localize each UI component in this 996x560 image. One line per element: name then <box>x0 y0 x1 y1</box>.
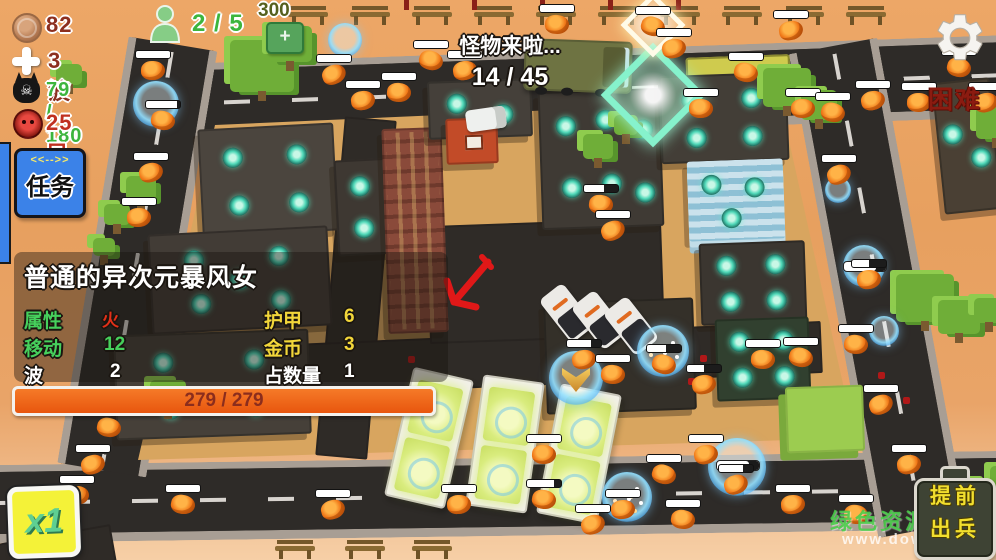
turret <box>716 256 737 277</box>
damage-dot <box>700 355 707 362</box>
enemy <box>165 484 201 514</box>
enemy-hp-bar <box>855 80 891 89</box>
enemy-hp-bar <box>728 52 764 61</box>
enemy-hp-fill <box>647 455 681 462</box>
turret <box>742 126 763 147</box>
task-button[interactable]: <<-->> 任务 <box>14 148 86 218</box>
enemy <box>646 344 682 374</box>
enemy-hp-bar <box>316 54 352 63</box>
settings-button[interactable] <box>932 10 988 66</box>
stat-move-label: 移动 <box>24 334 62 361</box>
enemy <box>783 337 819 367</box>
turret <box>555 115 576 136</box>
enemy-hp-bar <box>121 197 157 206</box>
enemy <box>815 92 851 122</box>
enemy-hp-fill <box>684 89 718 96</box>
plus-icon <box>12 47 40 75</box>
enemy <box>686 364 722 394</box>
enemy-hp-fill <box>689 435 723 442</box>
enemy-blob <box>867 392 896 418</box>
side-panel-edge <box>0 142 11 264</box>
enemy-hp-fill <box>567 340 591 347</box>
enemy-hp-fill <box>657 29 691 36</box>
enemy-hp-bar <box>526 479 562 488</box>
enemy-hp-fill <box>856 81 890 88</box>
turret <box>686 128 707 149</box>
enemy <box>745 339 781 369</box>
enemy-hp-bar <box>145 100 181 109</box>
bench <box>474 12 514 17</box>
enemy-hp-bar <box>718 464 754 473</box>
enemy-hp-bar <box>165 484 201 493</box>
enemy-hp-bar <box>345 80 381 89</box>
difficulty-badge: 困难 <box>928 80 982 116</box>
energy-add-button[interactable]: + <box>266 22 304 54</box>
enemy-hp-fill <box>596 355 630 362</box>
shield-bubble <box>328 23 362 57</box>
bench <box>288 12 328 17</box>
enemy-hp-bar <box>773 10 809 19</box>
enemy-hp-bar <box>686 364 722 373</box>
enemy-hp-bar <box>133 152 169 161</box>
enemy-blob <box>650 462 679 487</box>
enemy-hp-bar <box>566 339 602 348</box>
enemy-hp-bar <box>838 324 874 333</box>
coin-icon <box>12 13 42 43</box>
task-button-hint: <<-->> <box>17 154 83 166</box>
enemy-blob <box>693 443 720 466</box>
enemy-blob <box>141 61 165 80</box>
lamp-post <box>404 0 409 10</box>
person-icon <box>148 5 182 43</box>
tower-panel <box>474 445 527 505</box>
enemy-blob <box>319 497 347 522</box>
enemy-hp-bar <box>526 434 562 443</box>
turret <box>447 94 468 115</box>
enemy-hp-bar <box>656 28 692 37</box>
enemy-hp-fill <box>746 340 780 347</box>
enemy-hp-fill <box>729 53 763 60</box>
building <box>785 385 865 454</box>
enemy <box>526 479 562 509</box>
enemy-hp-bar <box>635 6 671 15</box>
enemy-blob <box>169 493 196 517</box>
turret <box>635 182 656 203</box>
population-indicator <box>148 5 182 48</box>
enemy-hp-fill <box>647 345 666 352</box>
task-button-label: 任务 <box>17 167 83 202</box>
stat-slot-label: 占数量 <box>264 361 321 388</box>
enemy-hp-fill <box>596 211 630 218</box>
enemy-hp-fill <box>122 198 156 205</box>
bubble-arrow <box>562 368 590 392</box>
stat-gold-value: 3 <box>344 334 355 356</box>
turret <box>942 123 964 145</box>
enemy-blob <box>95 416 123 440</box>
bench <box>846 12 886 17</box>
enemy-hp-fill <box>76 445 110 452</box>
tree <box>583 134 613 159</box>
enemy-blob <box>856 269 882 290</box>
turret <box>744 177 765 198</box>
enemy <box>605 489 641 519</box>
enemy-hp-bar: 279 / 279 <box>12 386 436 416</box>
enemy <box>775 484 811 514</box>
coin-count: 82 <box>46 12 72 38</box>
enemy-blob <box>600 364 626 385</box>
enemy <box>851 259 887 289</box>
enemy-blob <box>661 37 688 60</box>
enemy <box>728 52 764 82</box>
stat-attribute-value: 火 <box>102 306 119 331</box>
enemy-hp-bar <box>135 50 171 59</box>
enemy-blob <box>149 108 177 132</box>
enemy-hp-fill <box>60 476 94 483</box>
enemy-hp-fill <box>317 55 351 62</box>
speed-toggle-button[interactable]: x1 <box>7 485 81 559</box>
enemy-blob <box>778 19 805 42</box>
enemy <box>718 464 754 494</box>
bench <box>412 12 452 17</box>
enemy <box>315 489 351 519</box>
enemy-hp-fill <box>784 338 818 345</box>
lamp-post <box>472 0 477 10</box>
damage-dot <box>903 397 910 404</box>
bench <box>350 12 390 17</box>
enemy <box>121 197 157 227</box>
enemy-hp-fill <box>442 485 476 492</box>
enemy-blob <box>780 494 805 515</box>
enemy-name: 普通的异次元暴风女 <box>24 258 258 294</box>
enemy <box>595 354 631 384</box>
stat-armor-value: 6 <box>344 306 355 328</box>
energy-count: 300 <box>258 0 290 22</box>
enemy-hp-bar <box>775 484 811 493</box>
enemy-blob <box>819 100 847 125</box>
enemy-hp-fill <box>839 495 873 502</box>
building <box>197 123 338 238</box>
stat-wave-value: 2 <box>110 361 121 383</box>
enemy-hp-bar <box>539 4 575 13</box>
gear-icon <box>932 10 988 66</box>
turret <box>229 195 250 216</box>
enemy <box>891 444 927 474</box>
enemy <box>855 80 891 110</box>
enemy-hp-fill <box>527 435 561 442</box>
turret <box>222 148 243 169</box>
enemy-hp-bar <box>821 154 857 163</box>
damage-dot <box>878 372 885 379</box>
enemy <box>656 28 692 58</box>
enemy-hp-fill <box>606 490 640 497</box>
enemy-blob <box>791 98 816 118</box>
enemy-hp-fill <box>584 185 604 192</box>
enemy <box>665 499 701 529</box>
enemy-hp-bar <box>75 444 111 453</box>
enemy-hp-fill <box>852 260 869 267</box>
enemy-hp-fill <box>892 445 926 452</box>
enemy-blob <box>571 349 597 371</box>
enemy-hp-bar <box>583 184 619 193</box>
deploy-label-line2: 出兵 <box>917 514 993 547</box>
enemy-hp-fill <box>822 155 856 162</box>
enemy-hp-fill <box>346 81 380 88</box>
building <box>699 240 808 326</box>
enemy <box>646 454 682 484</box>
building <box>687 158 786 241</box>
enemy-blob <box>688 98 713 119</box>
watermark-url: www.dow <box>842 531 925 548</box>
lamp-post <box>676 0 681 10</box>
enemy-hp-text: 279 / 279 <box>184 390 263 411</box>
enemy-hp-fill <box>687 365 704 372</box>
enemy-blob <box>825 162 854 187</box>
enemy-hp-bar <box>315 489 351 498</box>
stat-gold-label: 金币 <box>264 334 302 361</box>
enemy-hp-fill <box>316 490 350 497</box>
enemy-hp-bar <box>783 337 819 346</box>
enemy-hp-bar <box>441 484 477 493</box>
turret <box>286 144 307 165</box>
enemy-hp-fill <box>719 465 743 472</box>
enemy-blob <box>531 444 556 465</box>
enemy-hp-bar <box>595 354 631 363</box>
turret <box>354 218 375 239</box>
enemy <box>345 80 381 110</box>
turret <box>721 207 742 228</box>
enemy <box>595 210 631 240</box>
enemy-hp-bar <box>59 475 95 484</box>
enemy-blob <box>579 512 607 537</box>
enemy-blob <box>127 208 151 227</box>
enemy-blob <box>650 352 679 378</box>
enemy-blob <box>611 499 636 519</box>
stat-move-value: 12 <box>104 334 125 356</box>
enemy-hp-fill <box>864 385 898 392</box>
wave-announcement: 怪物来啦... 14 / 45 <box>395 30 625 92</box>
enemy <box>773 10 809 40</box>
enemy-blob <box>137 161 165 185</box>
enemy <box>688 434 724 464</box>
enemy-hp-fill <box>166 485 200 492</box>
enemy-hp-fill <box>146 101 177 108</box>
tower-panel <box>557 396 612 458</box>
enemy <box>135 50 171 80</box>
monster-icon <box>13 109 43 139</box>
enemy <box>863 384 899 414</box>
enemy-hp-fill <box>134 153 168 160</box>
stat-armor-label: 护甲 <box>264 306 302 333</box>
turret <box>733 367 754 388</box>
stat-attribute-label: 属性 <box>24 306 62 333</box>
enemy-blob <box>670 508 697 531</box>
speed-toggle-label: x1 <box>24 501 63 540</box>
announcement-progress: 14 / 45 <box>395 63 625 92</box>
skull-cat-icon: ☠ <box>13 78 40 103</box>
enemy-blob <box>530 488 557 511</box>
announcement-text: 怪物来啦... <box>395 30 625 60</box>
enemy-hp-fill <box>666 500 700 507</box>
enemy <box>133 152 169 182</box>
enemy <box>441 484 477 514</box>
enemy-hp-bar <box>665 499 701 508</box>
stat-wave-label: 波 <box>24 361 43 388</box>
enemy-hp-fill <box>636 7 670 14</box>
enemy-hp-bar <box>891 444 927 453</box>
enemy-blob <box>598 217 627 243</box>
enemy-hp-bar <box>605 489 641 498</box>
turret <box>741 87 762 108</box>
turret <box>765 254 786 275</box>
turret <box>561 177 582 198</box>
enemy <box>526 434 562 464</box>
population-count: 2 / 5 <box>192 10 244 38</box>
enemy <box>75 444 111 474</box>
turret <box>701 175 722 196</box>
stat-slot-value: 1 <box>344 361 355 383</box>
bench <box>345 546 385 551</box>
enemy-hp-fill <box>527 480 554 487</box>
enemy <box>838 324 874 354</box>
enemy-blob <box>447 495 472 515</box>
enemy-hp-bar <box>863 384 899 393</box>
bench <box>722 12 762 17</box>
turret <box>349 176 370 197</box>
enemy-hp-bar <box>688 434 724 443</box>
enemy <box>821 154 857 184</box>
enemy-hp-bar <box>815 92 851 101</box>
bench <box>412 546 452 551</box>
enemy-blob <box>732 60 761 85</box>
enemy-hp-bar <box>851 259 887 268</box>
enemy-hp-bar <box>646 454 682 463</box>
enemy-blob <box>79 452 107 476</box>
enemy-hp-bar <box>683 88 719 97</box>
tree <box>974 298 996 323</box>
enemy-hp-bar <box>838 494 874 503</box>
turret <box>289 192 310 213</box>
enemy-blob <box>787 345 816 370</box>
enemy-hp-bar <box>595 210 631 219</box>
deploy-early-button[interactable]: 提前 出兵 <box>914 478 996 560</box>
enemy-blob <box>896 454 922 475</box>
enemy <box>145 100 181 130</box>
enemy-blob <box>750 349 776 370</box>
deploy-label-line1: 提前 <box>917 481 993 514</box>
enemy <box>683 88 719 118</box>
enemy-hp-fill <box>816 93 850 100</box>
enemy-blob <box>691 373 717 395</box>
enemy-hp-fill <box>839 325 873 332</box>
enemy-hp-fill <box>774 11 808 18</box>
turret <box>595 110 616 131</box>
turret <box>767 290 788 311</box>
enemy-hp-fill <box>540 5 574 12</box>
bench <box>275 546 315 551</box>
enemy-blob <box>843 333 869 355</box>
turret <box>774 366 795 387</box>
enemy-hp-fill <box>136 51 170 58</box>
turret <box>970 147 992 169</box>
lamp-post <box>608 0 613 10</box>
game-viewport: 82 3波 ☠ 79 / 180 25只 2 / 5 300 + 怪物来啦...… <box>0 0 996 560</box>
enemy-hp-bar <box>646 344 682 353</box>
enemy-hp-bar <box>745 339 781 348</box>
enemy-hp-fill <box>776 485 810 492</box>
enemy-blob <box>722 472 751 497</box>
turret <box>720 291 741 312</box>
enemy-blob <box>350 90 376 112</box>
enemy-blob <box>859 89 886 112</box>
